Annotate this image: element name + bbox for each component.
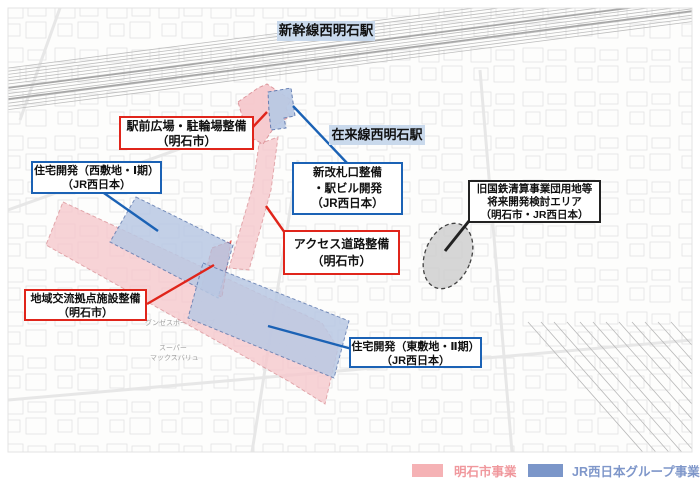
callout-line: （明石市） bbox=[121, 134, 252, 149]
callout-housing-east: 住宅開発（東敷地・Ⅱ期） （JR西日本） bbox=[349, 337, 482, 368]
callout-line: アクセス道路整備 bbox=[285, 236, 398, 253]
callout-line: （JR西日本） bbox=[294, 197, 401, 213]
callout-station-plaza: 駅前広場・駐輪場整備 （明石市） bbox=[119, 116, 254, 150]
callout-future-area: 旧国鉄清算事業団用地等 将来開発検討エリア （明石市・JR西日本） bbox=[468, 180, 601, 223]
callout-line: 住宅開発（西敷地・Ⅰ期） bbox=[33, 164, 160, 178]
map-label-super: スーパー bbox=[159, 344, 187, 352]
callout-line: （明石市） bbox=[285, 253, 398, 270]
legend-jr-label: JR西日本グループ事業 bbox=[572, 461, 700, 480]
legend-city-label: 明石市事業 bbox=[454, 461, 517, 480]
callout-community-hub: 地域交流拠点施設整備 （明石市） bbox=[24, 289, 147, 321]
callout-line: （明石市・JR西日本） bbox=[470, 209, 599, 222]
callout-line: （明石市） bbox=[26, 306, 145, 320]
callout-line: （JR西日本） bbox=[33, 178, 160, 192]
callout-line: 住宅開発（東敷地・Ⅱ期） bbox=[351, 340, 480, 354]
callout-line: 将来開発検討エリア bbox=[470, 196, 599, 209]
callout-access-road: アクセス道路整備 （明石市） bbox=[283, 230, 400, 275]
callout-ticket-gate: 新改札口整備 ・駅ビル開発 （JR西日本） bbox=[292, 162, 403, 215]
legend-city-swatch bbox=[412, 464, 443, 477]
callout-housing-west: 住宅開発（西敷地・Ⅰ期） （JR西日本） bbox=[31, 161, 162, 194]
conventional-station-label: 在来線西明石駅 bbox=[329, 125, 425, 145]
callout-line: （JR西日本） bbox=[351, 354, 480, 368]
callout-line: 旧国鉄清算事業団用地等 bbox=[470, 183, 599, 196]
callout-line: ・駅ビル開発 bbox=[294, 182, 401, 198]
map-label-maxvalu: マックスバリュ bbox=[150, 354, 199, 362]
development-plan-map: グンゼスポーツクラブ スーパー マックスバリュ bbox=[0, 0, 700, 488]
callout-line: 新改札口整備 bbox=[294, 166, 401, 182]
callout-line: 地域交流拠点施設整備 bbox=[26, 292, 145, 306]
legend-jr-swatch bbox=[528, 464, 563, 477]
callout-line: 駅前広場・駐輪場整備 bbox=[121, 119, 252, 134]
shinkansen-station-label: 新幹線西明石駅 bbox=[277, 21, 375, 41]
